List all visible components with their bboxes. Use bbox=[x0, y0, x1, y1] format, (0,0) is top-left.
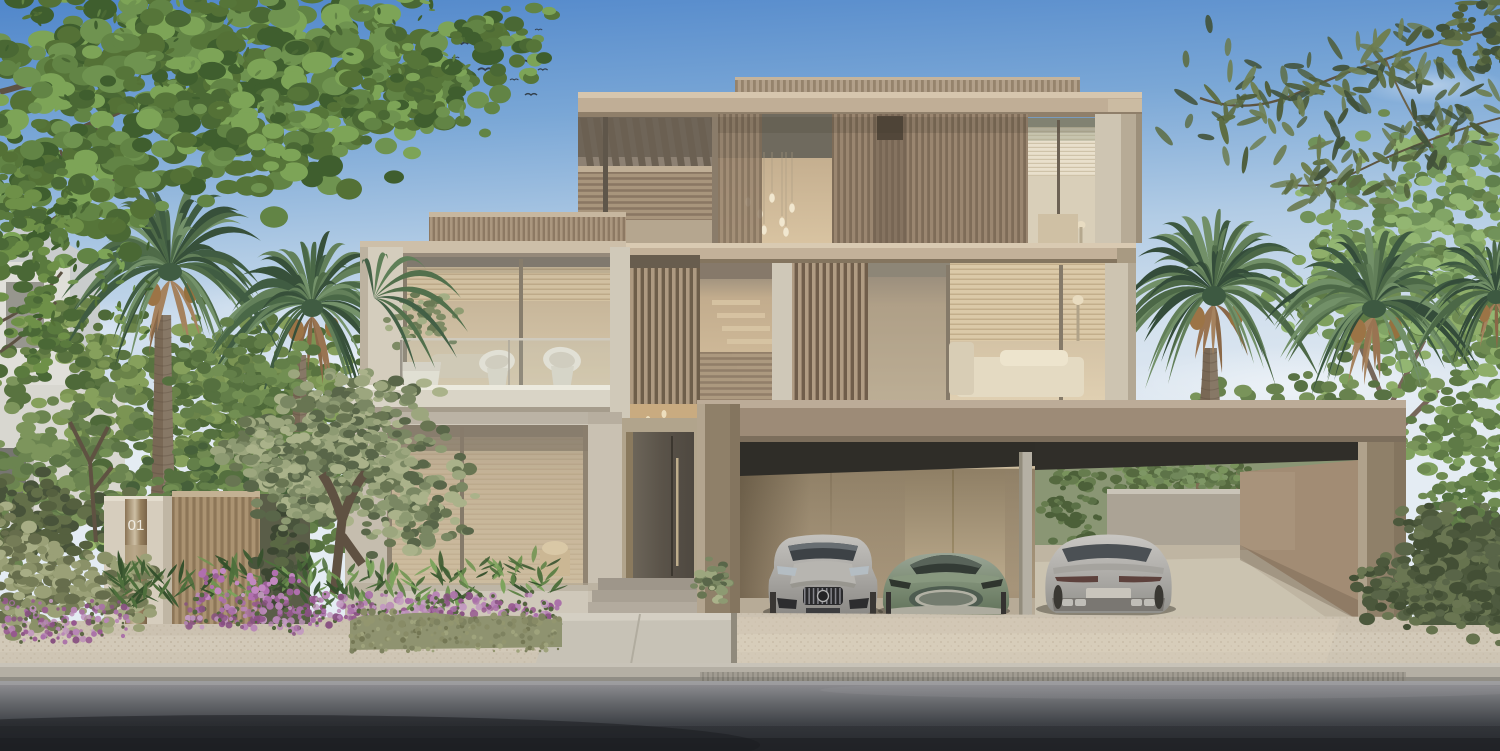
svg-text:01: 01 bbox=[128, 517, 145, 534]
